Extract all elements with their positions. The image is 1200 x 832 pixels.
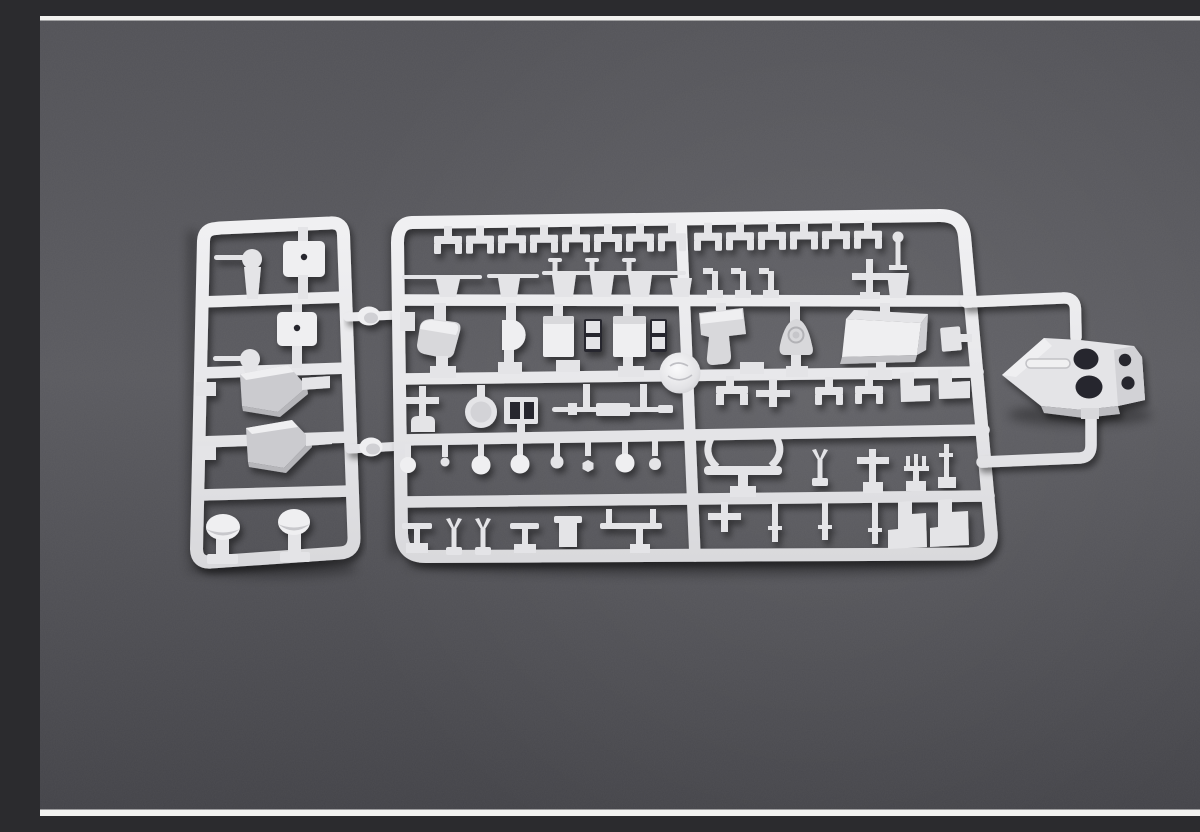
photo-sprue-svg (40, 16, 1200, 816)
ridge-slot (1026, 359, 1070, 368)
photo-bottom-strip (40, 810, 1200, 817)
left-runner-4 (199, 491, 351, 495)
sprue-photo: Photograph of light gray injection-molde… (40, 16, 1200, 816)
left-runner-1 (202, 297, 346, 302)
edge-tab (400, 312, 415, 331)
photo-top-strip (40, 16, 1200, 21)
attachment-tab (1081, 408, 1099, 419)
barbette-disc-part (660, 353, 701, 394)
